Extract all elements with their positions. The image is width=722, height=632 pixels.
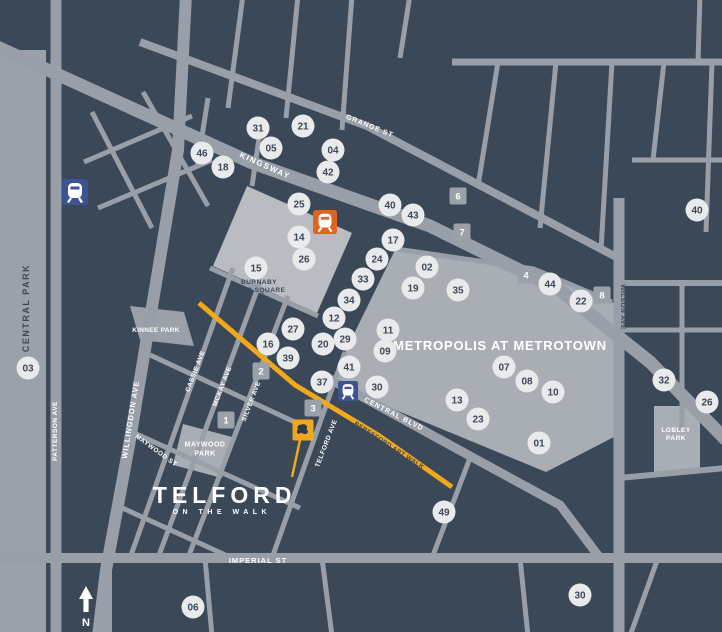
poi-circle-40: 40 (379, 194, 402, 217)
telford-logo-banner: TELFORD ON THE WALK (142, 476, 297, 522)
poi-circle-17: 17 (382, 229, 405, 252)
poi-circle-35: 35 (447, 279, 470, 302)
skytrain-station-icon-orange (313, 210, 337, 234)
poi-circle-21: 21 (292, 115, 315, 138)
poi-circle-05: 05 (260, 137, 283, 160)
poi-circle-number: 09 (379, 347, 391, 358)
poi-circle-number: 12 (328, 314, 340, 325)
poi-circle-30: 30 (366, 376, 389, 399)
poi-square-4: 4 (518, 267, 535, 284)
poi-circle-20: 20 (312, 333, 335, 356)
poi-square-number: 6 (455, 192, 460, 203)
poi-square-6: 6 (450, 188, 467, 205)
poi-circle-number: 16 (262, 340, 274, 351)
poi-circle-number: 34 (343, 296, 355, 307)
poi-circle-number: 19 (407, 284, 419, 295)
poi-square-number: 4 (523, 271, 529, 282)
poi-circle-number: 23 (472, 415, 484, 426)
poi-circle-number: 26 (298, 255, 310, 266)
poi-square-number: 2 (258, 367, 263, 378)
poi-circle-26: 26 (696, 391, 719, 414)
poi-square-number: 3 (310, 404, 315, 415)
poi-circle-number: 05 (265, 144, 277, 155)
poi-circle-15: 15 (245, 257, 268, 280)
poi-circle-number: 14 (293, 233, 305, 244)
poi-circle-12: 12 (323, 307, 346, 330)
poi-circle-number: 03 (22, 364, 34, 375)
poi-circle-number: 11 (383, 326, 394, 337)
poi-circle-13: 13 (446, 389, 469, 412)
poi-circle-number: 04 (327, 146, 339, 157)
poi-circle-number: 02 (421, 263, 433, 274)
poi-circle-43: 43 (402, 204, 425, 227)
poi-circle-number: 25 (293, 200, 305, 211)
street-label-patterson-ave: PATTERSON AVE (52, 401, 59, 461)
poi-square-1: 1 (218, 412, 235, 429)
poi-circle-42: 42 (317, 161, 340, 184)
area-label-maywood-park: MAYWOOD (185, 442, 226, 449)
poi-circle-number: 10 (547, 388, 559, 399)
poi-circle-31: 31 (247, 117, 270, 140)
poi-circle-number: 35 (452, 286, 464, 297)
poi-circle-number: 33 (357, 275, 369, 286)
poi-circle-number: 06 (187, 603, 199, 614)
area-label-burnaby-civic-square: BURNABY (241, 279, 277, 286)
metrotown-area-map: KINGSWAYGRANGE STIMPERIAL STCENTRAL BLVD… (0, 0, 722, 632)
area-label-burnaby-civic-square: CIVIC SQUARE (233, 287, 286, 294)
poi-circle-16: 16 (257, 333, 280, 356)
area-label-central-park: CENTRAL PARK (21, 264, 31, 352)
poi-circle-09: 09 (374, 340, 397, 363)
poi-circle-11: 11 (377, 319, 400, 342)
poi-circle-44: 44 (539, 273, 562, 296)
poi-circle-number: 39 (282, 354, 294, 365)
logo-title: TELFORD (153, 483, 291, 507)
poi-circle-23: 23 (467, 408, 490, 431)
poi-circle-27: 27 (282, 318, 305, 341)
poi-circle-03: 03 (17, 357, 40, 380)
poi-circle-19: 19 (402, 277, 425, 300)
telford-site-pin (293, 420, 314, 441)
poi-circle-number: 41 (343, 363, 355, 374)
poi-circle-number: 07 (498, 363, 510, 374)
poi-square-number: 1 (223, 416, 229, 427)
poi-circle-number: 24 (371, 255, 383, 266)
poi-circle-number: 13 (451, 396, 463, 407)
poi-circle-01: 01 (528, 432, 551, 455)
poi-circle-18: 18 (212, 156, 235, 179)
poi-square-2: 2 (253, 363, 270, 380)
poi-circle-37: 37 (311, 371, 334, 394)
poi-circle-24: 24 (366, 248, 389, 271)
poi-circle-39: 39 (277, 347, 300, 370)
poi-circle-34: 34 (338, 289, 361, 312)
poi-circle-49: 49 (433, 501, 456, 524)
poi-circle-number: 30 (574, 591, 586, 602)
area-label-lobley-park: PARK (666, 435, 686, 442)
street-label-wilson-ave: WILSON AVE (619, 284, 626, 330)
poi-circle-number: 43 (407, 211, 419, 222)
poi-square-number: 7 (459, 228, 464, 239)
poi-circle-number: 30 (371, 383, 383, 394)
poi-circle-26: 26 (293, 248, 316, 271)
poi-circle-46: 46 (191, 142, 214, 165)
poi-circle-number: 40 (691, 206, 703, 217)
poi-circle-number: 32 (658, 376, 670, 387)
north-letter: N (82, 617, 90, 629)
poi-circle-number: 21 (297, 122, 309, 133)
telford-logo: TELFORD ON THE WALK (149, 483, 291, 516)
poi-circle-30: 30 (569, 584, 592, 607)
area-label-metropolis-at-metrotown: METROPOLIS AT METROTOWN (393, 338, 607, 353)
area-label-maywood-park: PARK (194, 451, 215, 458)
poi-circle-number: 01 (533, 439, 545, 450)
poi-circle-number: 31 (252, 124, 264, 135)
poi-circle-number: 44 (544, 280, 556, 291)
poi-square-8: 8 (594, 287, 611, 304)
poi-circle-number: 20 (317, 340, 329, 351)
poi-circle-number: 37 (316, 378, 328, 389)
poi-circle-number: 18 (217, 163, 229, 174)
poi-circle-40: 40 (686, 199, 709, 222)
telford-mark-icon (297, 424, 308, 434)
poi-circle-number: 26 (701, 398, 713, 409)
poi-circle-22: 22 (570, 290, 593, 313)
poi-circle-number: 40 (384, 201, 396, 212)
poi-circle-number: 29 (339, 335, 351, 346)
poi-circle-08: 08 (516, 370, 539, 393)
poi-circle-29: 29 (334, 328, 357, 351)
poi-circle-25: 25 (288, 193, 311, 216)
logo-subtitle: ON THE WALK (153, 509, 291, 516)
poi-circle-04: 04 (322, 139, 345, 162)
poi-circle-number: 17 (387, 236, 399, 247)
street-label-imperial-st: IMPERIAL ST (229, 556, 287, 565)
poi-circle-10: 10 (542, 381, 565, 404)
poi-circle-number: 15 (250, 264, 262, 275)
poi-circle-number: 49 (438, 508, 450, 519)
poi-circle-33: 33 (352, 268, 375, 291)
skytrain-station-icon-patterson (62, 179, 88, 205)
poi-circle-number: 22 (575, 297, 587, 308)
poi-circle-32: 32 (653, 369, 676, 392)
map-canvas: KINGSWAYGRANGE STIMPERIAL STCENTRAL BLVD… (0, 0, 722, 632)
poi-square-3: 3 (305, 400, 322, 417)
poi-circle-41: 41 (338, 356, 361, 379)
poi-circle-number: 46 (196, 149, 208, 160)
poi-circle-number: 42 (322, 168, 334, 179)
poi-circle-07: 07 (493, 356, 516, 379)
poi-square-7: 7 (454, 224, 471, 241)
poi-circle-number: 27 (287, 325, 299, 336)
poi-circle-number: 08 (521, 377, 533, 388)
skytrain-station-icon-metrotown (338, 381, 358, 401)
poi-circle-14: 14 (288, 226, 311, 249)
area-label-kinnee-park: KINNEE PARK (132, 327, 180, 334)
poi-circle-02: 02 (416, 256, 439, 279)
poi-square-number: 8 (599, 291, 604, 302)
poi-circle-06: 06 (182, 596, 205, 619)
road (698, 0, 700, 62)
area-label-lobley-park: LOBLEY (661, 427, 691, 434)
